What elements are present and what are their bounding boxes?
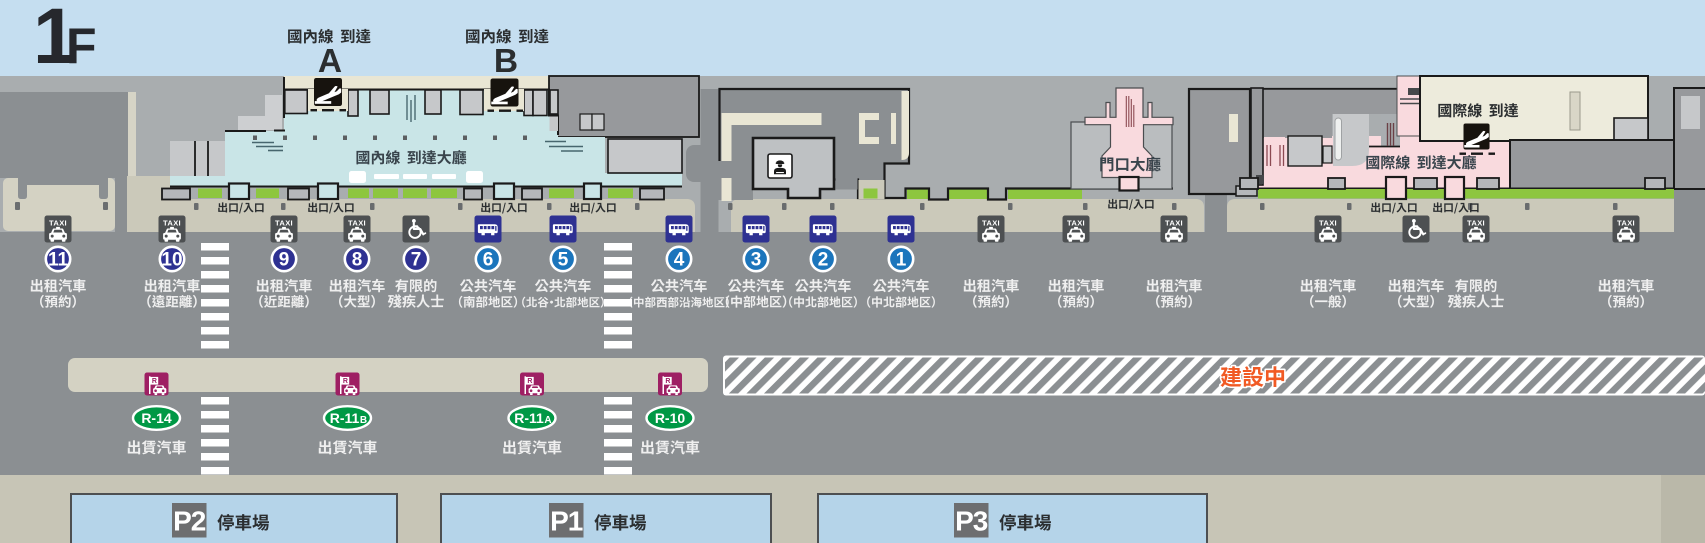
svg-text:1: 1 (896, 250, 907, 271)
svg-text:R-11: R-11 (514, 410, 544, 426)
svg-text:6: 6 (483, 250, 494, 271)
svg-text:R-14: R-14 (141, 410, 172, 426)
svg-text:B: B (494, 43, 518, 80)
svg-text:9: 9 (279, 250, 290, 271)
svg-text:7: 7 (411, 250, 422, 271)
svg-text:P3: P3 (955, 506, 988, 537)
svg-text:R-11: R-11 (330, 410, 360, 426)
svg-text:3: 3 (751, 250, 762, 271)
svg-text:11: 11 (48, 250, 69, 271)
svg-text:8: 8 (352, 250, 363, 271)
svg-text:P1: P1 (550, 506, 583, 537)
svg-text:5: 5 (558, 250, 569, 271)
svg-text:R-10: R-10 (655, 410, 686, 426)
svg-text:F: F (66, 18, 97, 74)
svg-text:B: B (360, 415, 367, 426)
svg-text:4: 4 (674, 250, 685, 271)
svg-text:10: 10 (161, 250, 182, 271)
svg-text:A: A (544, 415, 551, 426)
svg-text:A: A (318, 43, 342, 80)
svg-text:2: 2 (818, 250, 829, 271)
svg-text:P2: P2 (173, 506, 206, 537)
